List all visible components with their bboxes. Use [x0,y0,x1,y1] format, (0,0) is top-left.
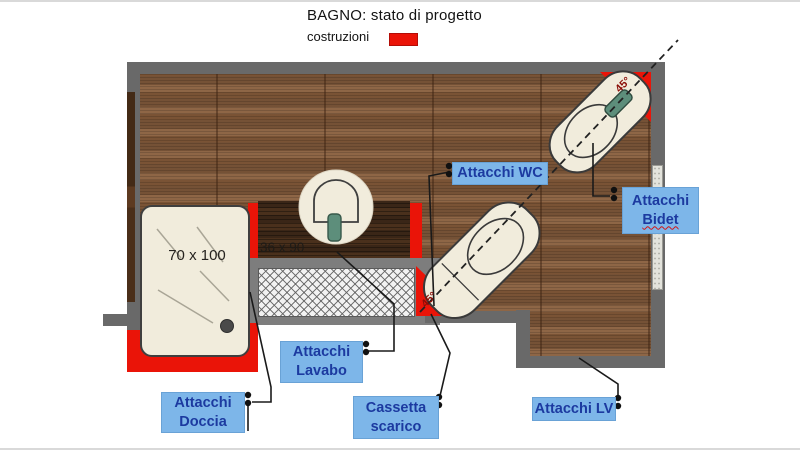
label-attacchi-lv-text: Attacchi LV [533,400,615,419]
label-attacchi-lavabo: Attacchi Lavabo [280,341,363,383]
label-attacchi-doccia: Attacchi Doccia [161,392,245,433]
label-attacchi-lv: Attacchi LV [532,397,616,421]
label-cassetta-scarico-line1: Cassetta [354,399,438,418]
label-attacchi-lavabo-line2: Lavabo [281,362,362,381]
label-attacchi-wc: Attacchi WC [452,162,548,185]
wc-fixture [413,191,551,329]
label-attacchi-bidet-line2: Bidet [623,211,698,230]
label-attacchi-doccia-line2: Doccia [162,413,244,432]
sink-faucet [328,214,341,241]
label-attacchi-lavabo-line1: Attacchi [281,343,362,362]
label-attacchi-wc-text: Attacchi WC [453,164,547,183]
leader-lines [248,143,618,431]
label-attacchi-bidet-line1: Attacchi [623,192,698,211]
leader-lv [579,358,618,397]
shower-tray [141,206,249,356]
sink-fixture [299,170,373,244]
label-cassetta-scarico-line2: scarico [354,418,438,437]
label-attacchi-bidet: Attacchi Bidet [622,187,699,234]
counter-dimension: 36 x 90 [260,240,304,255]
leader-lavabo [337,252,394,351]
shower-drain [221,320,234,333]
label-attacchi-doccia-line1: Attacchi [162,394,244,413]
label-cassetta-scarico: Cassetta scarico [353,396,439,439]
shower-dimension: 70 x 100 [152,247,242,264]
leader-cassetta [431,314,450,396]
floor-plan-canvas: BAGNO: stato di progetto costruzioni [0,0,800,450]
leader-doccia [250,292,271,402]
